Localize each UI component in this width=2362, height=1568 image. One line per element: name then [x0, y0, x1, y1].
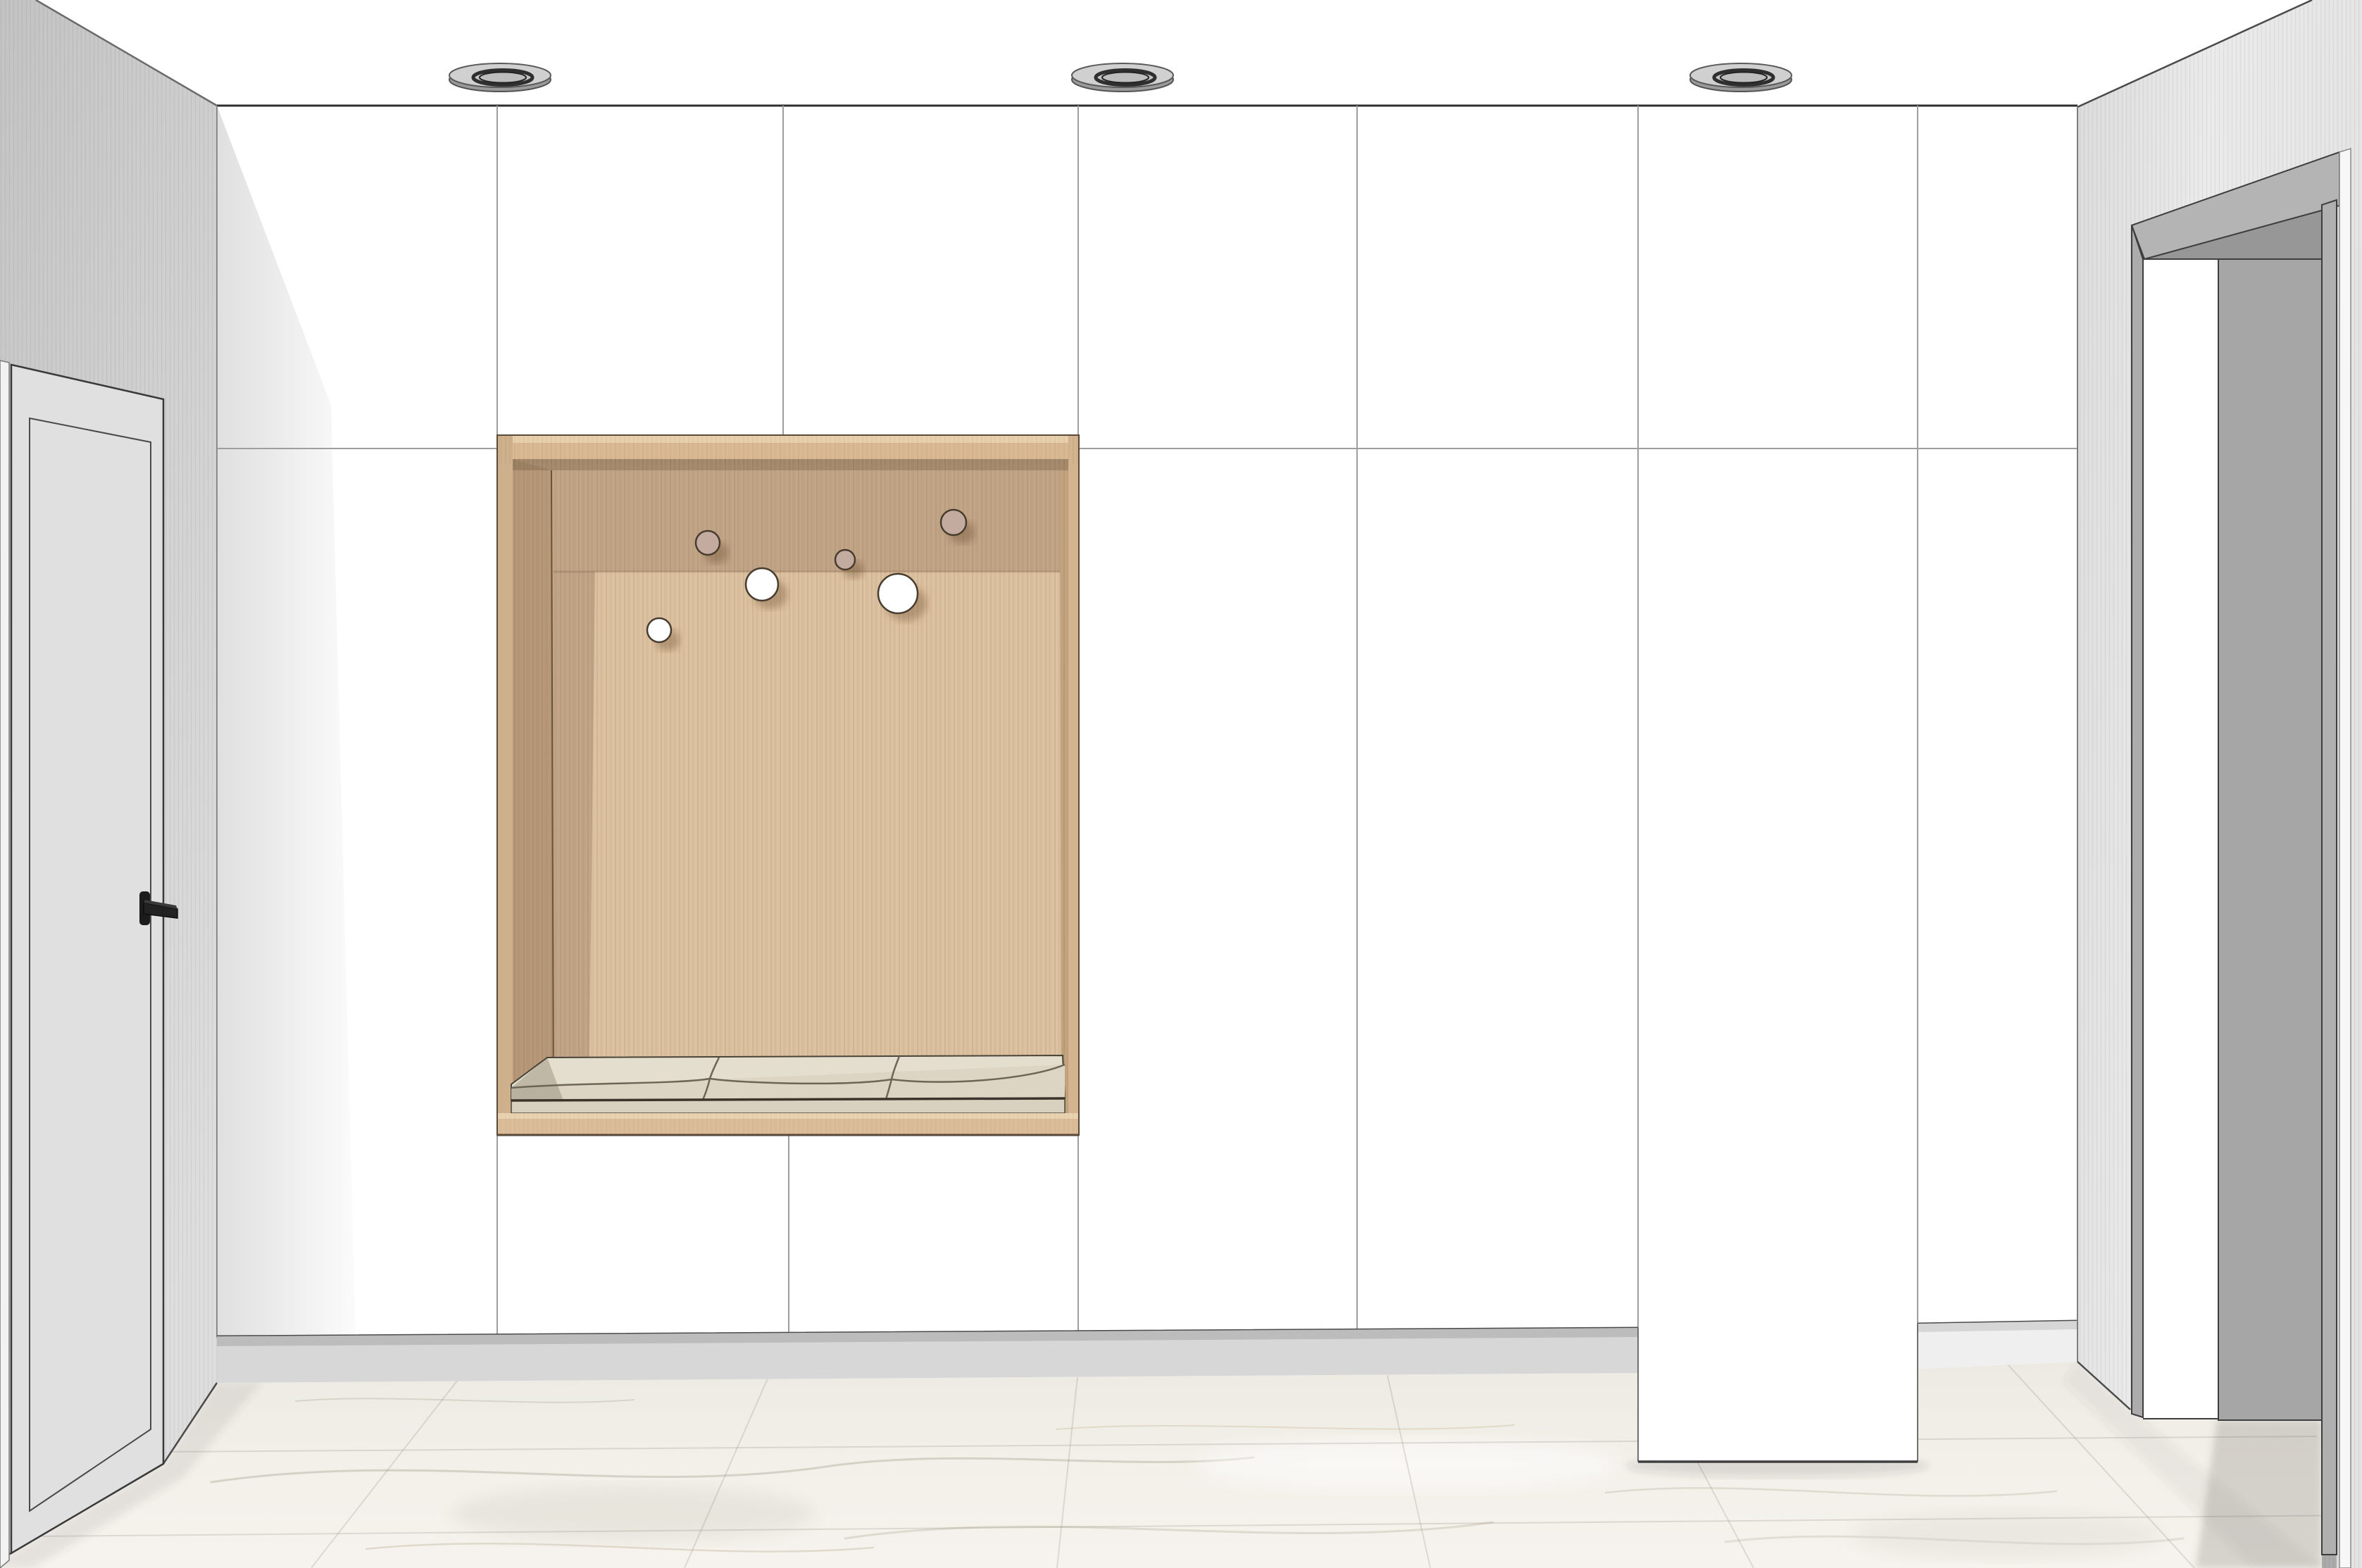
niche-frame-grain [497, 435, 1079, 463]
recessed-ceiling-light [1072, 63, 1173, 92]
hallway-render [0, 0, 2362, 1568]
round-hook [878, 574, 918, 613]
right-door-opening [2143, 259, 2218, 1419]
marble-floor [0, 1362, 2362, 1568]
light-inner-ring [1102, 73, 1149, 83]
cabinet-face [217, 106, 2077, 1338]
right-door-jamb-foot-shadow [2322, 1555, 2337, 1568]
right-door-leaf-open [2218, 259, 2322, 1420]
round-hook [835, 550, 855, 570]
recessed-ceiling-light [449, 63, 551, 92]
right-doorway [2132, 149, 2351, 1568]
render-viewport [0, 0, 2362, 1568]
round-hook [746, 568, 778, 601]
light-inner-ring [1720, 73, 1767, 83]
left-door [0, 360, 177, 1568]
recessed-ceiling-light [1690, 63, 1792, 92]
round-hook [941, 510, 966, 535]
right-door-inner-jamb [2322, 200, 2337, 1555]
right-door-frame-pilaster [2132, 225, 2143, 1417]
light-inner-ring [480, 73, 526, 83]
floor-shadow-doorway [2196, 1420, 2322, 1568]
niche-frame-left [497, 435, 513, 1135]
left-door-leaf [11, 365, 163, 1553]
bench [511, 1055, 1065, 1113]
niche-grain-overlay [513, 459, 1068, 1113]
round-hook [696, 531, 720, 555]
round-hook [647, 618, 671, 642]
ceiling [0, 0, 2362, 113]
niche-frame-bottom-grain [497, 1113, 1079, 1135]
right-door-frame-sliver [2339, 149, 2351, 1568]
coat-niche [497, 435, 1079, 1135]
tall-cabinet-column [1638, 1324, 1918, 1462]
niche-frame-right [1068, 435, 1079, 1135]
wardrobe-wall [217, 106, 2077, 1462]
left-door-frame-strip [0, 360, 9, 1568]
